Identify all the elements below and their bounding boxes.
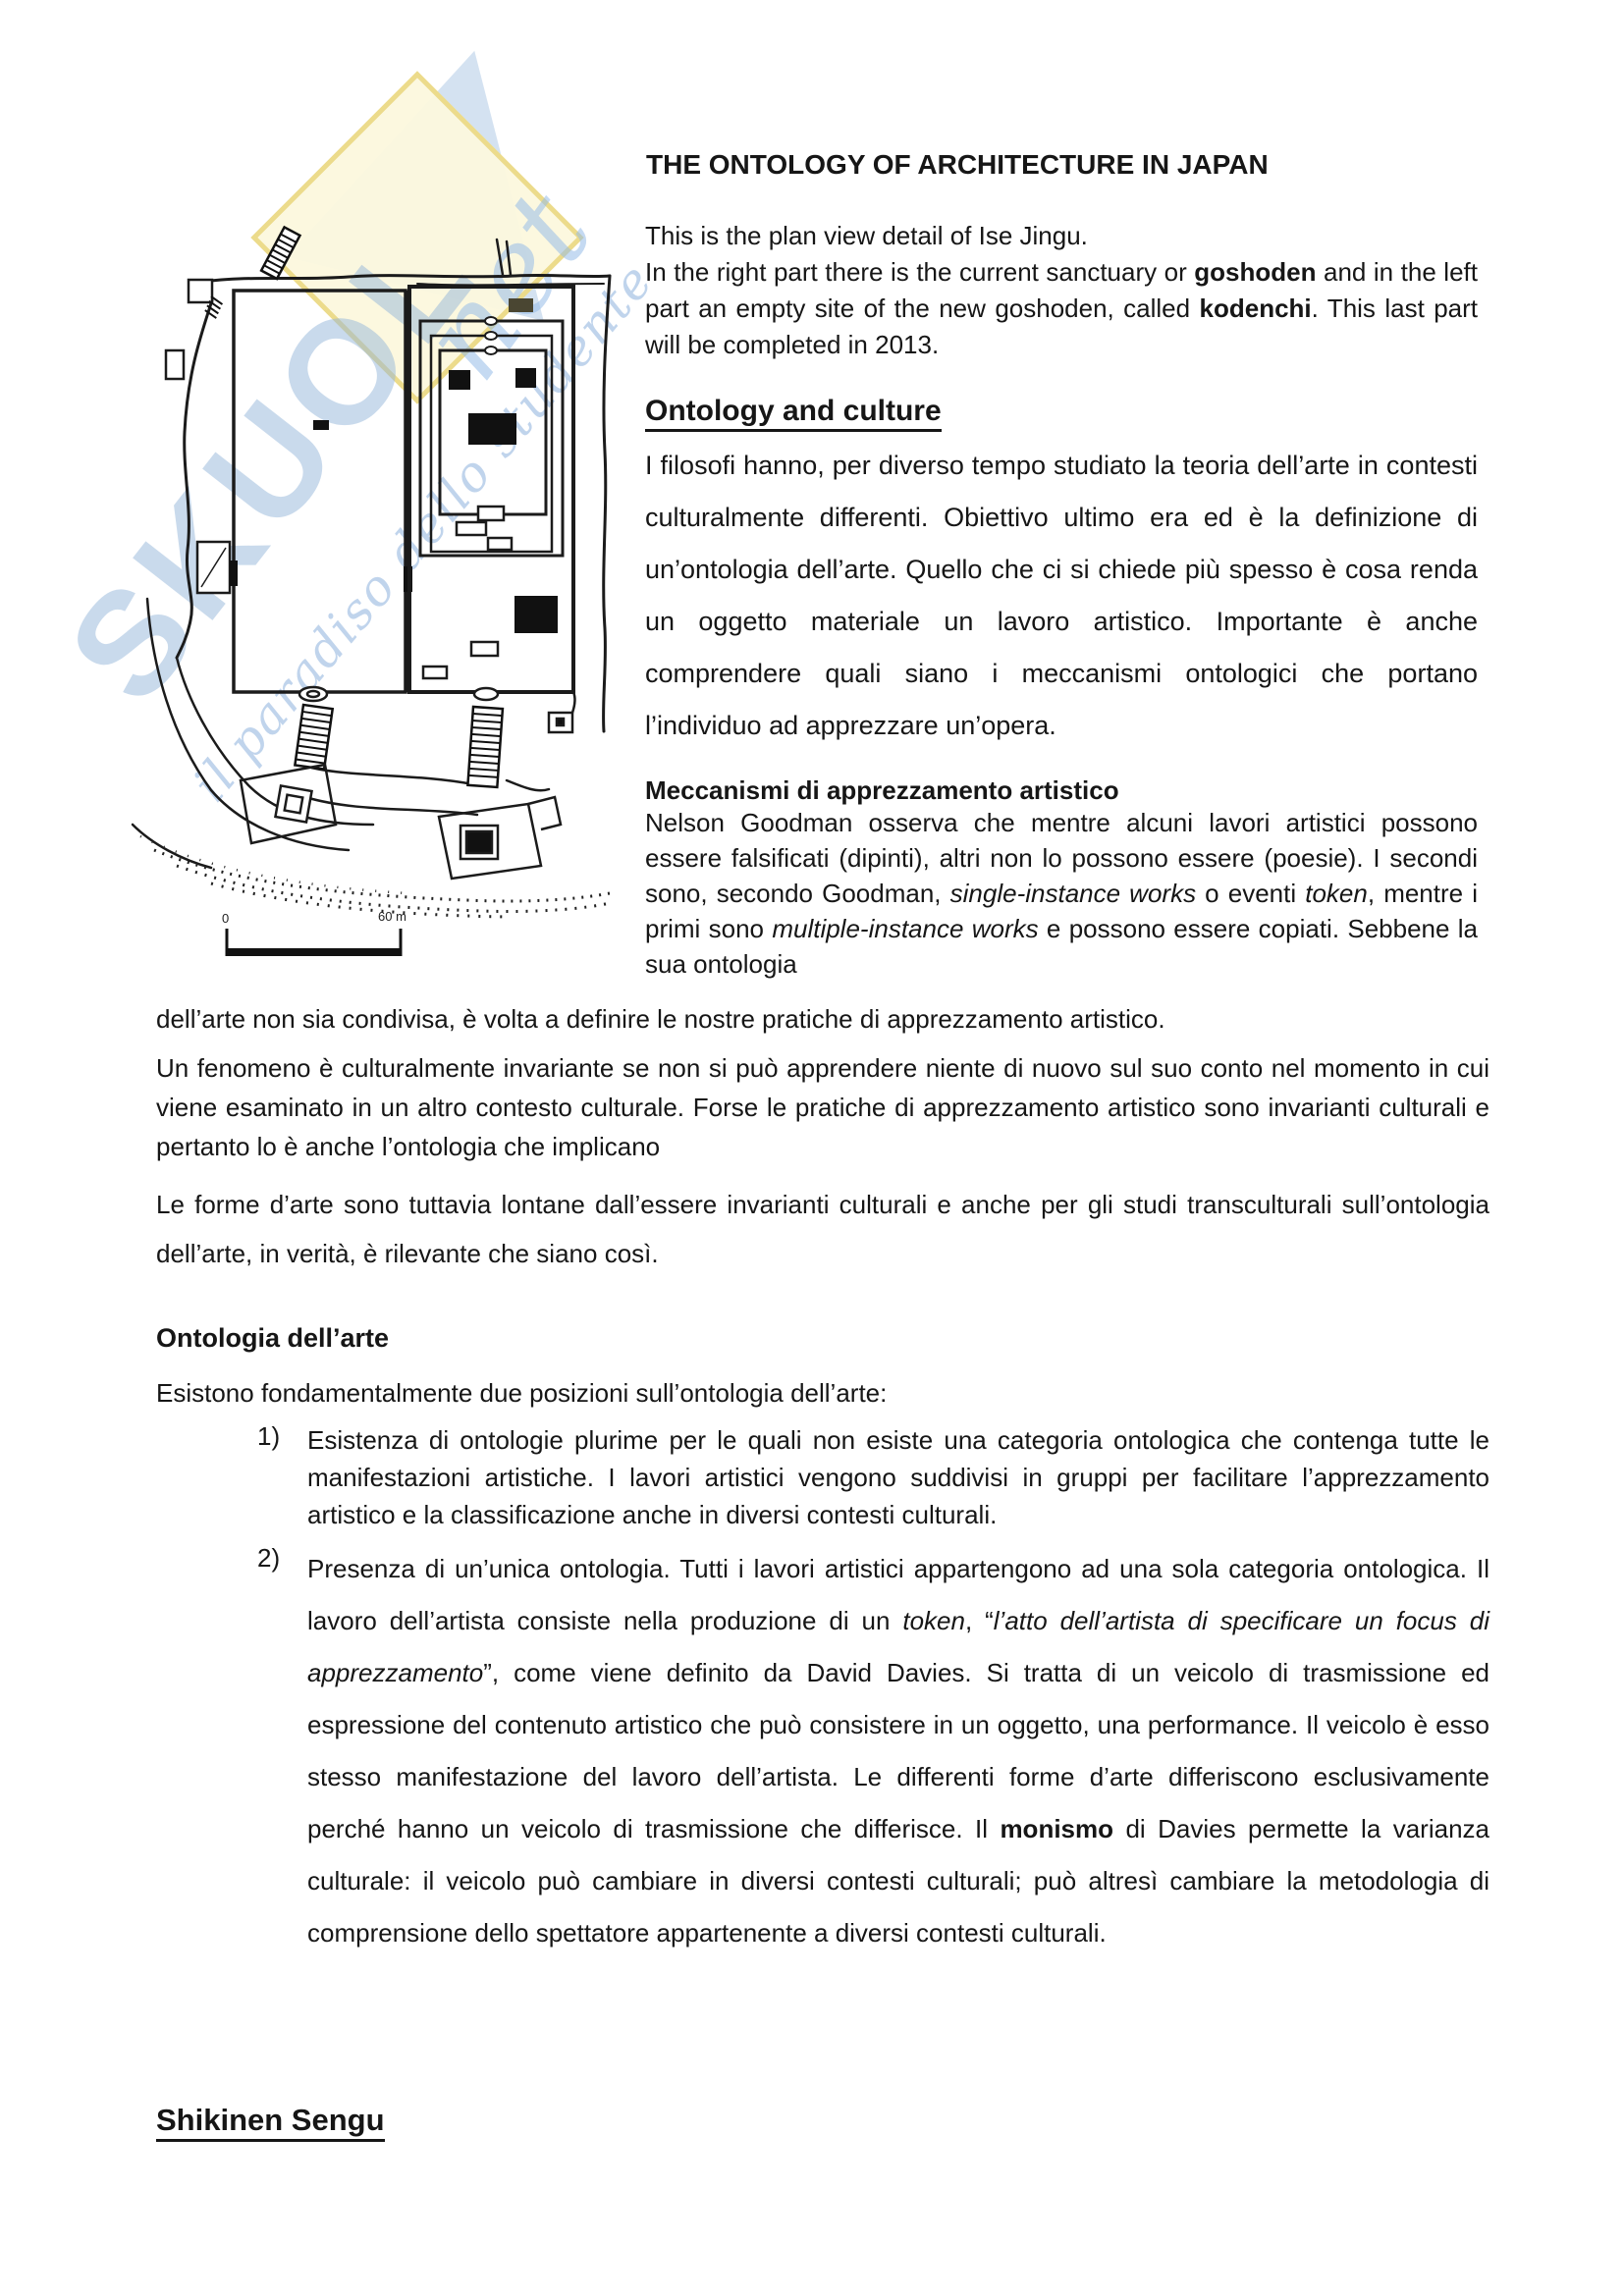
roof-block [509, 298, 533, 312]
gate-mark-left [230, 561, 238, 586]
paragraph-esistono: Esistono fondamentalmente due posizioni … [156, 1378, 1489, 1409]
paragraph-filosofi: I filosofi hanno, per diverso tempo stud… [645, 440, 1478, 752]
paragraph-continuation: dell’arte non sia condivisa, è volta a d… [156, 999, 1489, 1039]
list-item-2-text: Presenza di un’unica ontologia. Tutti i … [307, 1543, 1489, 1959]
stairs-bottom-left [295, 705, 332, 770]
paragraph-nelson-goodman: Nelson Goodman osserva che mentre alcuni… [645, 805, 1478, 982]
fence-top-line [197, 275, 610, 283]
lower-hall-block [514, 596, 558, 633]
document-page: { "watermark": { "word": "SKUOL", "scrip… [0, 0, 1624, 2296]
ise-jingu-plan-figure: 0 60 m [93, 137, 614, 1001]
page-title: THE ONTOLOGY OF ARCHITECTURE IN JAPAN [646, 149, 1490, 181]
heading-meccanismi: Meccanismi di apprezzamento artistico [645, 775, 1119, 806]
gate-ellipse-right [474, 688, 498, 700]
heading-shikinen-sengu: Shikinen Sengu [156, 2103, 385, 2142]
heading-ontology-and-culture: Ontology and culture [645, 395, 942, 432]
kodenchi-center-mark [313, 420, 329, 430]
scale-label-max: 60 m [378, 909, 406, 924]
scale-label-zero: 0 [222, 911, 229, 926]
lower-right-enclosure [439, 797, 561, 879]
stipple-ground [140, 836, 610, 917]
lower-left-enclosure [241, 765, 336, 843]
treasury-east [515, 368, 536, 388]
treasury-west [449, 370, 470, 390]
list-item-1-number: 1) [257, 1421, 280, 1452]
figure-scale-bar: 0 60 m [222, 909, 406, 956]
intro-paragraph: This is the plan view detail of Ise Jing… [645, 218, 1478, 363]
stairs-top [261, 227, 299, 279]
kodenchi-courtyard [234, 291, 406, 692]
stairs-bottom-right [467, 707, 503, 787]
outbuilding-square [166, 350, 184, 379]
paragraph-le-forme: Le forme d’arte sono tuttavia lontane da… [156, 1180, 1489, 1278]
outbuilding-square [189, 280, 212, 302]
paragraph-un-fenomeno: Un fenomeno è culturalmente invariante s… [156, 1048, 1489, 1166]
fence-right-line [604, 276, 610, 731]
main-sanctuary-block [468, 413, 516, 445]
list-item-2-number: 2) [257, 1543, 280, 1574]
heading-ontologia-arte: Ontologia dell’arte [156, 1323, 389, 1354]
list-item-1-text: Esistenza di ontologie plurime per le qu… [307, 1421, 1489, 1533]
